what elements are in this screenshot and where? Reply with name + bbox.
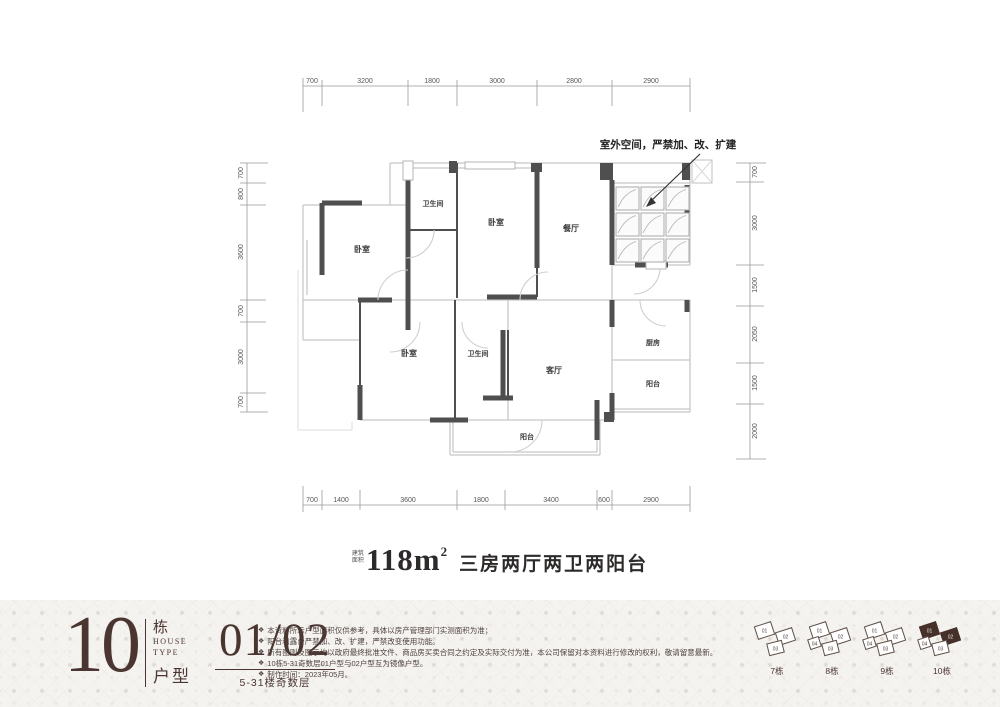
note-text: 制作时间：2023年05月。 xyxy=(267,669,352,680)
svg-text:01: 01 xyxy=(872,629,878,635)
note-line: ❖阳台和露台严禁加、改、扩建，严禁改变使用功能。 xyxy=(258,636,746,647)
key-plate-building-10-highlighted: 01 02 03 04 10栋 xyxy=(918,622,961,676)
note-line: ❖制作时间：2023年05月。 xyxy=(258,669,746,680)
svg-text:04: 04 xyxy=(922,642,928,648)
bullet-icon: ❖ xyxy=(258,669,264,680)
dimension-left: 700 800 3600 700 3000 700 xyxy=(238,163,268,412)
note-text: 所有图则及图示均以政府最终批准文件、商品房买卖合同之约定及实际交付为准，本公司保… xyxy=(267,647,717,658)
bullet-icon: ❖ xyxy=(258,647,264,658)
svg-text:01: 01 xyxy=(927,629,933,635)
room-label-bedroom2: 卧室 xyxy=(488,217,504,227)
note-text: 阳台和露台严禁加、改、扩建，严禁改变使用功能。 xyxy=(267,636,440,647)
room-label-dining: 餐厅 xyxy=(562,223,579,233)
dim-label: 600 xyxy=(598,497,610,504)
floor-plan-drawing: 室外空间，严禁加、改、扩建 卧室 卫生间 卧室 餐厅 卧室 卫生间 客厅 厨房 … xyxy=(0,0,1000,600)
key-caption: 8栋 xyxy=(825,666,839,676)
dim-label: 3000 xyxy=(238,349,245,365)
dim-label: 2050 xyxy=(752,326,759,342)
dim-label: 700 xyxy=(238,396,245,408)
note-line: ❖所有图则及图示均以政府最终批准文件、商品房买卖合同之约定及实际交付为准，本公司… xyxy=(258,647,746,658)
svg-text:03: 03 xyxy=(773,647,779,653)
outdoor-grid xyxy=(616,187,689,262)
dimension-bottom: 700 1400 3600 1800 3400 600 2900 xyxy=(303,486,690,512)
key-plate-building-9: 01 02 03 04 9栋 xyxy=(863,622,906,676)
bullet-icon: ❖ xyxy=(258,658,264,669)
dim-label: 2900 xyxy=(643,78,659,85)
note-line: ❖本资料所示户型面积仅供参考，具体以房产管理部门实测面积为准； xyxy=(258,625,746,636)
room-label-balcony-bottom: 阳台 xyxy=(520,432,534,441)
dimension-top: 700 3200 1800 3000 2800 2900 xyxy=(303,78,690,112)
dim-label: 700 xyxy=(238,167,245,179)
key-caption: 7栋 xyxy=(770,666,784,676)
shaft-hatch xyxy=(692,160,712,183)
block-label-stack: 栋 HOUSE TYPE 户型 xyxy=(145,619,191,687)
bullet-icon: ❖ xyxy=(258,625,264,636)
type-label: TYPE xyxy=(153,648,191,659)
svg-text:03: 03 xyxy=(883,647,889,653)
area-headline: 建筑面积 118m2三房两厅两卫两阳台 xyxy=(0,542,1000,578)
dim-label: 3400 xyxy=(543,497,559,504)
neighbor-unit-outline xyxy=(298,270,352,430)
area-superscript: 2 xyxy=(441,544,448,559)
dim-label: 3000 xyxy=(489,78,505,85)
room-label-bedroom3: 卧室 xyxy=(401,348,417,358)
block-unit-label: 栋 xyxy=(153,619,191,637)
room-label-kitchen: 厨房 xyxy=(646,338,660,347)
key-caption: 10栋 xyxy=(933,666,951,676)
dim-label: 2900 xyxy=(643,497,659,504)
layout-description: 三房两厅两卫两阳台 xyxy=(459,554,648,575)
disclaimer-notes: ❖本资料所示户型面积仅供参考，具体以房产管理部门实测面积为准； ❖阳台和露台严禁… xyxy=(258,625,746,680)
dim-label: 1800 xyxy=(424,78,440,85)
svg-text:01: 01 xyxy=(762,629,768,635)
dim-label: 1500 xyxy=(752,277,759,293)
huxing-label: 户型 xyxy=(153,662,191,687)
svg-text:01: 01 xyxy=(817,629,823,635)
block-number: 10 xyxy=(64,611,138,680)
dim-label: 3000 xyxy=(752,215,759,231)
svg-text:02: 02 xyxy=(893,635,899,641)
dim-label: 3200 xyxy=(357,78,373,85)
room-label-bath2: 卫生间 xyxy=(468,349,489,358)
svg-text:03: 03 xyxy=(828,647,834,653)
room-label-living: 客厅 xyxy=(545,365,562,375)
dim-label: 2000 xyxy=(752,423,759,439)
dim-label: 3600 xyxy=(400,497,416,504)
dim-label: 3600 xyxy=(238,244,245,260)
area-value: 118m xyxy=(366,542,441,577)
note-text: 本资料所示户型面积仅供参考，具体以房产管理部门实测面积为准； xyxy=(267,625,492,636)
dim-label: 700 xyxy=(752,166,759,178)
dim-label: 1800 xyxy=(473,497,489,504)
dim-label: 1500 xyxy=(752,375,759,391)
key-plate-building-8: 01 02 03 04 8栋 xyxy=(808,622,851,676)
room-label-bedroom1: 卧室 xyxy=(354,244,370,254)
dim-label: 2800 xyxy=(566,78,582,85)
key-caption: 9栋 xyxy=(880,666,894,676)
svg-text:02: 02 xyxy=(783,635,789,641)
room-label-balcony-right: 阳台 xyxy=(646,379,660,388)
svg-text:02: 02 xyxy=(948,635,954,641)
annotation-text: 室外空间，严禁加、改、扩建 xyxy=(600,138,737,151)
svg-text:03: 03 xyxy=(938,647,944,653)
svg-text:02: 02 xyxy=(838,635,844,641)
note-text: 10栋5-31奇数层01户型与02户型互为镜像户型。 xyxy=(267,658,427,669)
note-line: ❖10栋5-31奇数层01户型与02户型互为镜像户型。 xyxy=(258,658,746,669)
walls-thin xyxy=(360,163,537,420)
house-label: HOUSE xyxy=(153,637,191,648)
dim-label: 1400 xyxy=(333,497,349,504)
floor-plan-sheet: 室外空间，严禁加、改、扩建 卧室 卫生间 卧室 餐厅 卧室 卫生间 客厅 厨房 … xyxy=(0,0,1000,707)
bullet-icon: ❖ xyxy=(258,636,264,647)
door-arcs xyxy=(378,230,666,452)
svg-text:04: 04 xyxy=(867,642,873,648)
dim-label: 700 xyxy=(306,497,318,504)
area-prefix: 建筑面积 xyxy=(352,551,364,565)
room-label-bath1: 卫生间 xyxy=(423,199,444,208)
svg-text:04: 04 xyxy=(812,642,818,648)
key-plate-building-7: 01 02 03 7栋 xyxy=(754,622,795,676)
dim-label: 700 xyxy=(306,78,318,85)
dim-label: 800 xyxy=(238,188,245,200)
building-key-plates: 01 02 03 7栋 01 02 03 04 8栋 0 xyxy=(733,604,988,700)
dimension-right: 700 3000 1500 2050 1500 2000 xyxy=(736,163,766,459)
footer-band: 10 栋 HOUSE TYPE 户型 01/02 5-31楼奇数层 ❖本资料所示… xyxy=(0,600,1000,707)
dim-label: 700 xyxy=(238,305,245,317)
